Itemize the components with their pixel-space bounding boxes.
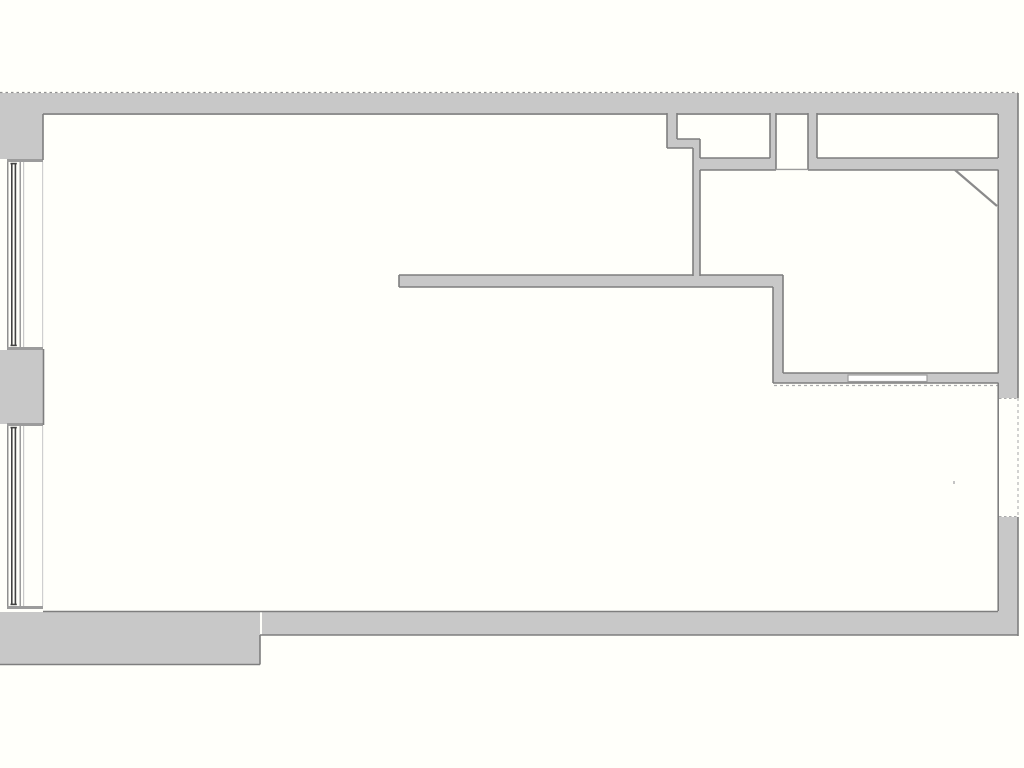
rooms-bottom-wall-left	[693, 158, 776, 170]
window2-glass-line-2	[15, 427, 17, 605]
window1-outer-frame-line	[7, 162, 9, 347]
plan-speck	[953, 481, 955, 484]
floor-plan-canvas	[0, 0, 1024, 768]
bottom-exterior-wall	[262, 612, 1018, 635]
window1-sill-edge-line	[23, 162, 24, 347]
window1-interior-face-line	[42, 162, 43, 347]
floor-plan-page	[0, 0, 1024, 768]
window1-bottom-sill	[7, 347, 43, 350]
interior-wall-opening	[848, 375, 927, 382]
bottom-exterior-wall-thick	[0, 612, 260, 665]
window2-sill-edge-line	[23, 426, 24, 606]
window2-glass-cap-top	[11, 427, 17, 429]
rooms-bottom-wall-right	[808, 158, 998, 170]
wall-between-room-a-b	[770, 113, 776, 170]
window2-glass-cap-bottom	[11, 604, 17, 606]
left-wall-pier-top	[0, 93, 43, 159]
window2-inner-frame-line	[20, 426, 22, 606]
window1-glass-line-2	[15, 163, 17, 346]
window2-outer-frame-line	[7, 426, 9, 606]
mid-vertical-wall	[773, 275, 783, 383]
corner-diagonal-partition	[955, 170, 997, 206]
window2-top-sill	[7, 423, 43, 426]
right-exterior-wall-upper	[998, 93, 1018, 398]
window1-top-sill	[7, 159, 43, 162]
window1-inner-frame-line	[20, 162, 22, 347]
window2-glass-line-1	[11, 427, 13, 605]
top-exterior-wall	[0, 93, 1018, 115]
window2-interior-face-line	[42, 426, 43, 606]
window1-glass-line-1	[11, 163, 13, 346]
right-exterior-wall-lower	[998, 517, 1018, 612]
main-interior-wall	[399, 275, 783, 287]
left-wall-pier-middle	[0, 350, 44, 424]
window2-bottom-sill	[7, 606, 43, 609]
window1-glass-cap-top	[11, 163, 17, 165]
window1-glass-cap-bottom	[11, 345, 17, 347]
